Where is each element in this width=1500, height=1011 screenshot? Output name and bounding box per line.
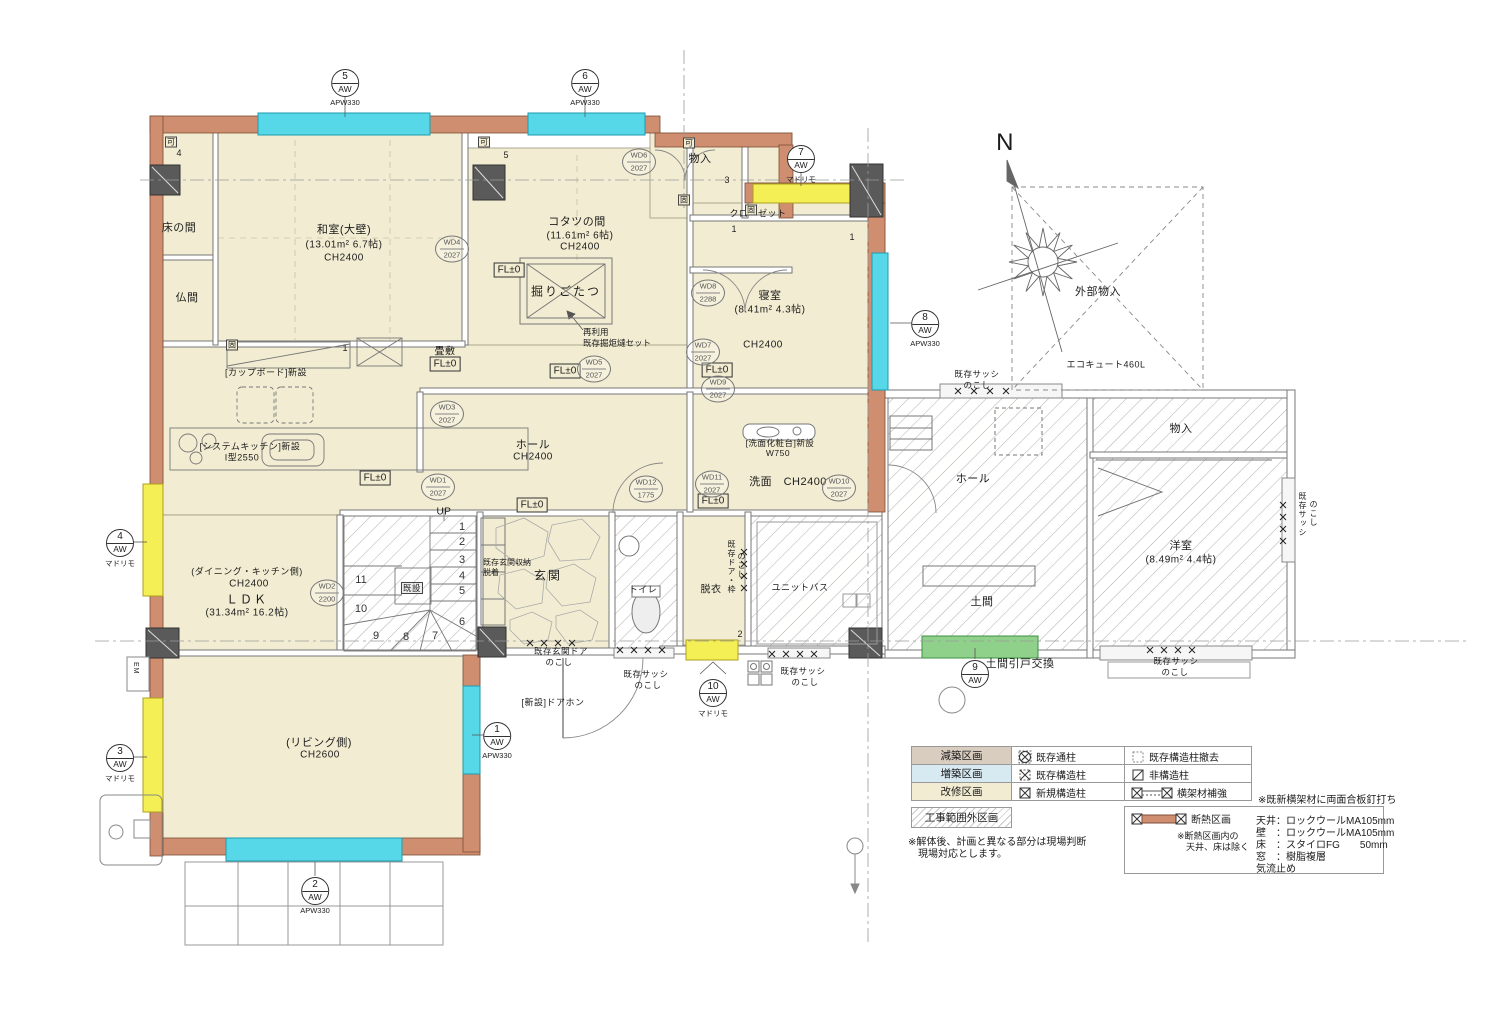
window-marker-3aw: 3AW マドリモ bbox=[105, 744, 135, 784]
kotatsu-ch: CH2400 bbox=[560, 242, 600, 253]
fl-label-5: FL±0 bbox=[360, 471, 391, 486]
washitsu-area: (13.01m² 6.7帖) bbox=[305, 236, 382, 251]
insulation-icon bbox=[1131, 812, 1187, 826]
legend-sym-beam-reinforce: 横架材補強 bbox=[1131, 785, 1227, 800]
stairs-core-label: 既設 bbox=[401, 582, 423, 594]
room-label-tokonoma: 床の間 bbox=[162, 219, 197, 235]
room-label-butsuma: 仏間 bbox=[176, 289, 199, 305]
label-doma-door: 土間引戸交換 bbox=[986, 655, 1055, 671]
legend-zone-outofscope: 工事範囲外区画 bbox=[911, 807, 1012, 828]
door-marker-wd3: WD32027 bbox=[430, 401, 464, 428]
shinshitsu-ch: CH2400 bbox=[743, 340, 783, 351]
ldk-side: (ダイニング・キッチン側) bbox=[191, 565, 303, 578]
room-label-genkan: 玄関 bbox=[534, 567, 562, 584]
wall-tag: 固 bbox=[678, 195, 690, 206]
ldk-area: (31.34m² 16.2帖) bbox=[205, 604, 288, 619]
wall-tag: 固 bbox=[226, 340, 238, 351]
legend-zone-reduction: 減築区画 bbox=[911, 746, 1012, 765]
fl-label-2: FL±0 bbox=[430, 357, 461, 372]
shinshitsu-area: (8.41m² 4.3帖) bbox=[735, 301, 806, 316]
sash-keep-e2: のこし bbox=[1308, 500, 1319, 527]
living-side: (リビング側) bbox=[286, 734, 352, 750]
washer-units bbox=[748, 661, 772, 685]
room-label-hall: ホール bbox=[516, 436, 551, 452]
door-marker-wd12: WD121775 bbox=[629, 476, 663, 503]
legend-zone-addition: 増築区画 bbox=[911, 764, 1012, 783]
x-box-icon bbox=[1018, 786, 1032, 800]
legend-sym-existing-post: 既存通柱 bbox=[1018, 749, 1076, 764]
grid-number: 2 bbox=[737, 629, 742, 639]
circle-x-post-icon bbox=[1018, 750, 1032, 764]
horigotatsu-note2: 既存掘炬燵セット bbox=[583, 337, 651, 349]
window-marker-8aw: 8AW APW330 bbox=[910, 310, 940, 348]
compass-rose bbox=[978, 160, 1118, 352]
doorwaku-keep-2: のこし bbox=[736, 552, 747, 579]
legend-sym-nonstruct: 非構造柱 bbox=[1131, 767, 1189, 782]
washitsu-ch: CH2400 bbox=[324, 253, 364, 264]
stair-step: 4 bbox=[459, 570, 465, 582]
sash-keep-b2: のこし bbox=[634, 679, 661, 691]
room-label-monoire-top: 物入 bbox=[689, 150, 712, 166]
door-marker-wd11: WD112027 bbox=[695, 471, 729, 498]
door-marker-wd9: WD92027 bbox=[701, 376, 735, 403]
window-marker-9aw: 9AW bbox=[961, 660, 989, 689]
window-marker-1aw: 1AW APW330 bbox=[482, 722, 512, 760]
sash-keep-a2: のこし bbox=[963, 379, 990, 391]
legend-zone-renovation: 改修区画 bbox=[911, 782, 1012, 801]
hall-ch: CH2400 bbox=[513, 452, 553, 463]
label-tatamijiki: 畳敷 bbox=[435, 343, 456, 358]
room-label-monoire-right: 物入 bbox=[1170, 420, 1193, 436]
stair-step: 5 bbox=[459, 585, 465, 597]
door-marker-wd1: WD12027 bbox=[421, 474, 455, 501]
fl-label-3: FL±0 bbox=[550, 364, 581, 379]
stair-step: 9 bbox=[373, 630, 379, 642]
grid-number: 1 bbox=[849, 232, 854, 242]
window-marker-2aw: 2AW APW330 bbox=[300, 877, 330, 915]
door-marker-wd2: WD22200 bbox=[310, 580, 344, 607]
floor-plan: 床の間 和室(大壁) (13.01m² 6.7帖) CH2400 仏間 コタツの… bbox=[0, 0, 1500, 1011]
stair-step: 7 bbox=[432, 630, 438, 642]
stair-step: 8 bbox=[403, 631, 409, 643]
sash-keep-c2: のこし bbox=[791, 676, 818, 688]
beam-reinforce-icon bbox=[1131, 786, 1173, 800]
em-label: EM bbox=[132, 662, 139, 675]
stair-step: 3 bbox=[459, 554, 465, 566]
fl-label-1: FL±0 bbox=[494, 263, 525, 278]
door-marker-wd7: WD72027 bbox=[686, 339, 720, 366]
stair-step: 10 bbox=[355, 603, 367, 615]
kotatsu-area: (11.61m² 6帖) bbox=[547, 227, 614, 242]
room-label-senmen: 洗面 CH2400 bbox=[749, 473, 827, 489]
genkan-door-keep-2: のこし bbox=[545, 656, 572, 668]
room-label-unitbath: ユニットバス bbox=[771, 581, 828, 594]
legend-beam-note: ※既新横架材に両面合板釘打ち bbox=[1258, 791, 1396, 806]
site-note-2: 現場対応とします。 bbox=[908, 845, 1007, 860]
yoshitsu-area: (8.49m² 4.4帖) bbox=[1146, 551, 1217, 566]
room-label-datsui: 脱衣 bbox=[701, 581, 722, 596]
room-label-hall2: ホール bbox=[956, 470, 991, 486]
window-marker-4aw: 4AW マドリモ bbox=[105, 529, 135, 569]
grid-number: 4 bbox=[176, 148, 181, 158]
label-gaibu-monoire: 外部物入 bbox=[1075, 283, 1121, 299]
legend-sym-insulation: 断熱区画 bbox=[1131, 811, 1231, 826]
doorphone-note: [新設]ドアホン bbox=[521, 696, 584, 709]
stair-step: 11 bbox=[355, 574, 366, 586]
wall-tag: 可 bbox=[683, 138, 695, 149]
stairs-up-label: UP bbox=[437, 507, 452, 518]
diagonal-box-icon bbox=[1131, 768, 1145, 782]
room-label-horigotatsu: 掘りごたつ bbox=[531, 283, 601, 300]
wall-tag: 可 bbox=[478, 137, 490, 148]
legend-spec-airflow: 気流止め bbox=[1256, 860, 1296, 875]
grid-number: 1 bbox=[731, 224, 736, 234]
window-marker-7aw: 7AW マドリモ bbox=[786, 145, 816, 185]
window-marker-10aw: 10AW マドリモ bbox=[698, 679, 728, 719]
room-label-toilet: トイレ bbox=[629, 583, 658, 596]
room-label-closet: クローゼット bbox=[729, 207, 786, 220]
window-marker-5aw: 5AW APW330 bbox=[330, 69, 360, 107]
window-marker-6aw: 6AW APW330 bbox=[570, 69, 600, 107]
fl-label-6: FL±0 bbox=[517, 498, 548, 513]
label-ecocute: エコキュート460L bbox=[1066, 358, 1145, 371]
note-cupboard: [カップボード]新設 bbox=[225, 366, 307, 379]
x-box-dotted-icon bbox=[1018, 768, 1032, 782]
stair-step: 6 bbox=[459, 616, 465, 628]
door-marker-wd4: WD42027 bbox=[435, 236, 469, 263]
room-label-doma: 土間 bbox=[971, 593, 994, 609]
legend-sym-new-struct: 新規構造柱 bbox=[1018, 785, 1086, 800]
compass-north-label: N bbox=[996, 129, 1014, 157]
grid-number: 5 bbox=[503, 150, 508, 160]
note-vanity2: W750 bbox=[766, 448, 790, 458]
sash-keep-d2: のこし bbox=[1161, 666, 1188, 678]
note-kitchen2: I型2550 bbox=[225, 451, 260, 464]
wall-tag: 可 bbox=[165, 137, 177, 148]
dotted-box-icon bbox=[1131, 750, 1145, 764]
sash-keep-e1: 既存サッシ bbox=[1297, 492, 1308, 537]
ldk-ch: CH2400 bbox=[229, 579, 269, 590]
grid-number: 1 bbox=[342, 343, 347, 353]
grid-number: 3 bbox=[724, 175, 729, 185]
legend-sym-existing-struct: 既存構造柱 bbox=[1018, 767, 1086, 782]
door-marker-wd5: WD52027 bbox=[577, 356, 611, 383]
legend-sym-removed-post: 既存構造柱撤去 bbox=[1131, 749, 1219, 764]
door-marker-wd8: WD82288 bbox=[691, 280, 725, 307]
door-marker-wd6: WD62027 bbox=[622, 149, 656, 176]
legend-insul-note2: 天井、床は除く bbox=[1186, 840, 1249, 853]
stair-step: 2 bbox=[459, 536, 465, 548]
wall-tag: 固 bbox=[745, 205, 757, 216]
door-marker-wd10: WD102027 bbox=[822, 475, 856, 502]
stair-step: 1 bbox=[459, 521, 465, 533]
living-ch: CH2600 bbox=[300, 750, 340, 761]
genkan-storage-2: 脱着 bbox=[483, 567, 499, 578]
renovation-rooms bbox=[163, 130, 885, 852]
